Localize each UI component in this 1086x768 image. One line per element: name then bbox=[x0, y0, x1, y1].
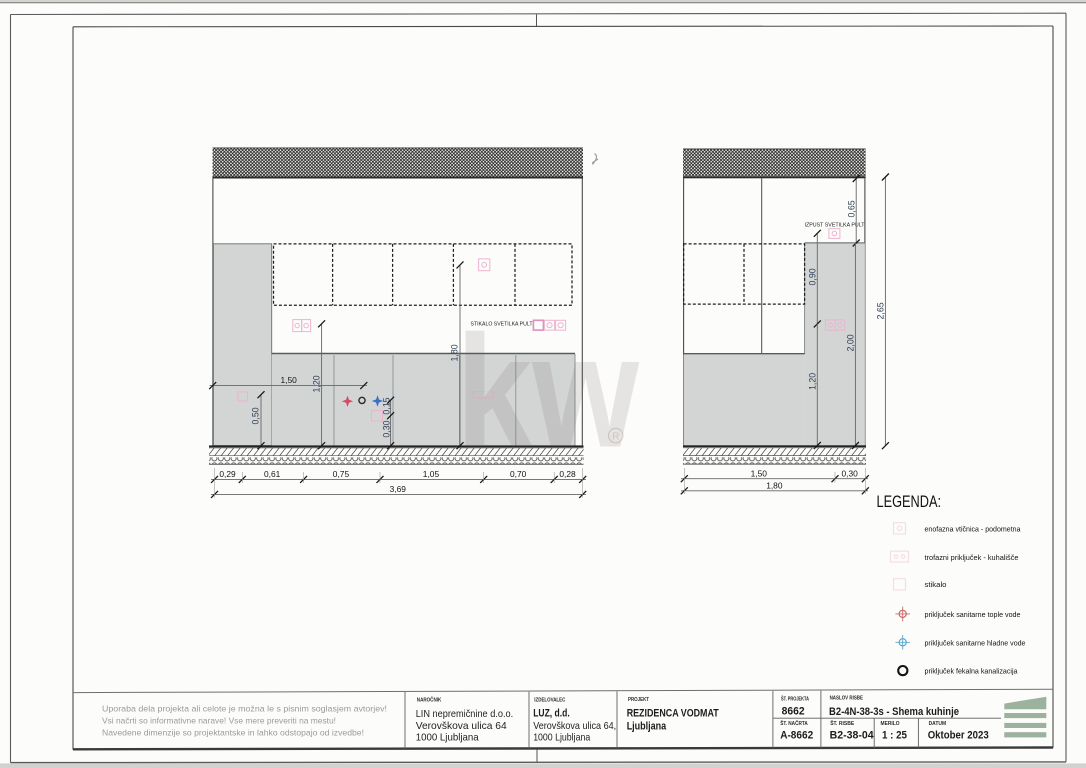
svg-text:2,65: 2,65 bbox=[876, 302, 886, 319]
svg-text:LUZ, d.d.: LUZ, d.d. bbox=[533, 708, 570, 720]
svg-text:0,29: 0,29 bbox=[219, 469, 236, 479]
svg-text:NASLOV RISBE: NASLOV RISBE bbox=[830, 696, 864, 702]
svg-text:IZDELOVALEC: IZDELOVALEC bbox=[534, 697, 565, 703]
svg-text:trofazni priključek - kuhališč: trofazni priključek - kuhališče bbox=[925, 553, 1019, 562]
svg-text:1,80: 1,80 bbox=[766, 481, 783, 491]
svg-text:1000 Ljubljana: 1000 Ljubljana bbox=[533, 732, 590, 744]
svg-text:NAROČNIK: NAROČNIK bbox=[417, 696, 442, 703]
svg-text:enofazna vtičnica - podometna: enofazna vtičnica - podometna bbox=[925, 525, 1022, 534]
svg-text:Uporaba dela projekta ali celo: Uporaba dela projekta ali celote je možn… bbox=[102, 704, 387, 714]
svg-text:B2-4N-38-3s - Shema kuhinje: B2-4N-38-3s - Shema kuhinje bbox=[829, 706, 959, 718]
svg-text:3,69: 3,69 bbox=[390, 484, 407, 494]
svg-text:1,50: 1,50 bbox=[751, 468, 768, 478]
svg-text:Ljubljana: Ljubljana bbox=[627, 721, 667, 733]
svg-text:ŠT. PROJEKTA: ŠT. PROJEKTA bbox=[781, 694, 809, 702]
svg-text:0,50: 0,50 bbox=[250, 407, 260, 424]
svg-text:priključek sanitarne hladne vo: priključek sanitarne hladne vode bbox=[925, 638, 1026, 647]
svg-text:Verovškova ulica 64: Verovškova ulica 64 bbox=[416, 720, 507, 732]
svg-text:kw: kw bbox=[456, 302, 639, 481]
svg-text:0,30: 0,30 bbox=[842, 468, 859, 478]
svg-text:0,90: 0,90 bbox=[808, 268, 818, 285]
svg-text:0,61: 0,61 bbox=[264, 469, 281, 479]
svg-text:0,15: 0,15 bbox=[381, 397, 391, 414]
svg-text:0,65: 0,65 bbox=[847, 200, 857, 217]
svg-text:LIN nepremičnine d.o.o.: LIN nepremičnine d.o.o. bbox=[416, 708, 514, 720]
svg-text:1000 Ljubljana: 1000 Ljubljana bbox=[416, 732, 479, 744]
svg-text:ŠT. NAČRTA: ŠT. NAČRTA bbox=[780, 719, 808, 727]
svg-text:R: R bbox=[612, 431, 619, 442]
svg-text:0,75: 0,75 bbox=[333, 469, 350, 479]
svg-text:Vsi načrti so informativne nar: Vsi načrti so informativne narave! Vse m… bbox=[102, 716, 336, 726]
svg-text:1,05: 1,05 bbox=[423, 469, 440, 479]
svg-text:1,50: 1,50 bbox=[281, 375, 298, 385]
svg-text:priključek fekalna kanalizacij: priključek fekalna kanalizacija bbox=[925, 667, 1019, 676]
svg-text:LEGENDA:: LEGENDA: bbox=[877, 493, 942, 511]
svg-text:Navedene dimenzije so projekta: Navedene dimenzije so projektantske in l… bbox=[102, 728, 364, 738]
svg-text:priključek sanitarne tople vod: priključek sanitarne tople vode bbox=[925, 610, 1021, 619]
svg-text:1 : 25: 1 : 25 bbox=[882, 729, 907, 741]
svg-text:ŠT. RISBE: ŠT. RISBE bbox=[830, 719, 854, 727]
svg-text:0,30: 0,30 bbox=[381, 420, 391, 437]
svg-text:2,00: 2,00 bbox=[846, 334, 856, 351]
svg-text:B2-38-04: B2-38-04 bbox=[830, 729, 875, 741]
svg-text:Verovškova ulica 64,: Verovškova ulica 64, bbox=[533, 720, 616, 732]
svg-text:8662: 8662 bbox=[782, 705, 805, 717]
svg-text:PROJEKT: PROJEKT bbox=[628, 697, 650, 703]
svg-text:1,20: 1,20 bbox=[808, 373, 818, 390]
svg-text:stikalo: stikalo bbox=[925, 580, 947, 589]
svg-text:MERILO: MERILO bbox=[881, 721, 900, 727]
svg-text:A-8662: A-8662 bbox=[780, 729, 813, 741]
svg-text:REZIDENCA VODMAT: REZIDENCA VODMAT bbox=[627, 708, 719, 720]
svg-text:Oktober 2023: Oktober 2023 bbox=[928, 729, 989, 741]
svg-text:1,20: 1,20 bbox=[312, 375, 322, 392]
svg-text:DATUM: DATUM bbox=[929, 721, 947, 727]
